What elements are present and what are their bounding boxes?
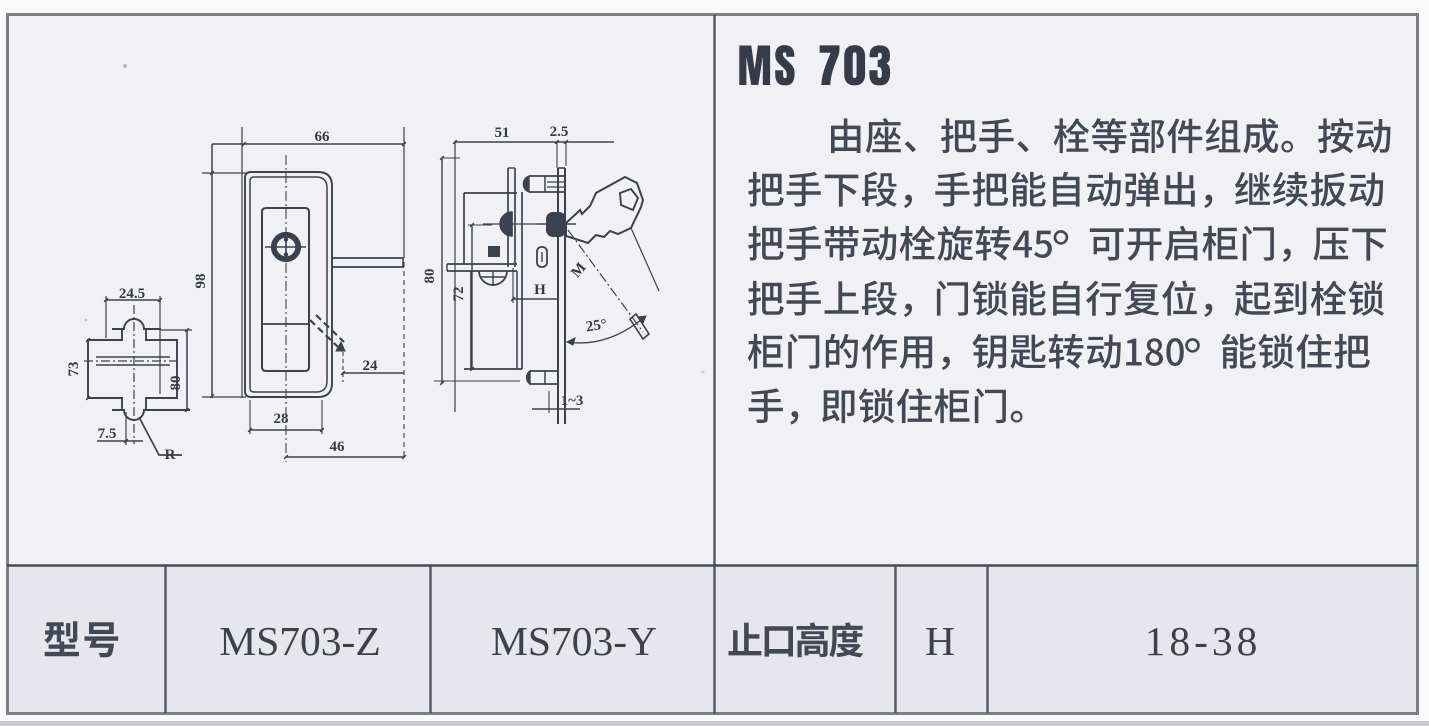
svg-text:MS703-Y: MS703-Y bbox=[491, 618, 657, 664]
svg-text:7.5: 7.5 bbox=[98, 426, 117, 442]
svg-text:80: 80 bbox=[422, 269, 438, 284]
svg-text:66: 66 bbox=[315, 129, 331, 145]
svg-text:2.5: 2.5 bbox=[550, 124, 569, 140]
svg-text:80: 80 bbox=[168, 376, 184, 391]
svg-text:98: 98 bbox=[193, 274, 209, 289]
svg-text:R: R bbox=[165, 447, 176, 463]
svg-text:H: H bbox=[534, 282, 546, 298]
svg-text:18-38: 18-38 bbox=[1145, 618, 1262, 664]
svg-text:28: 28 bbox=[274, 411, 289, 427]
svg-text:H: H bbox=[925, 618, 955, 664]
svg-text:25°: 25° bbox=[585, 317, 608, 336]
svg-text:1~3: 1~3 bbox=[561, 393, 584, 409]
svg-text:46: 46 bbox=[330, 439, 346, 455]
svg-text:24: 24 bbox=[363, 358, 379, 374]
svg-text:51: 51 bbox=[495, 125, 510, 141]
svg-text:73: 73 bbox=[66, 362, 82, 377]
svg-text:MS703-Z: MS703-Z bbox=[219, 618, 380, 664]
svg-text:72: 72 bbox=[451, 287, 467, 302]
